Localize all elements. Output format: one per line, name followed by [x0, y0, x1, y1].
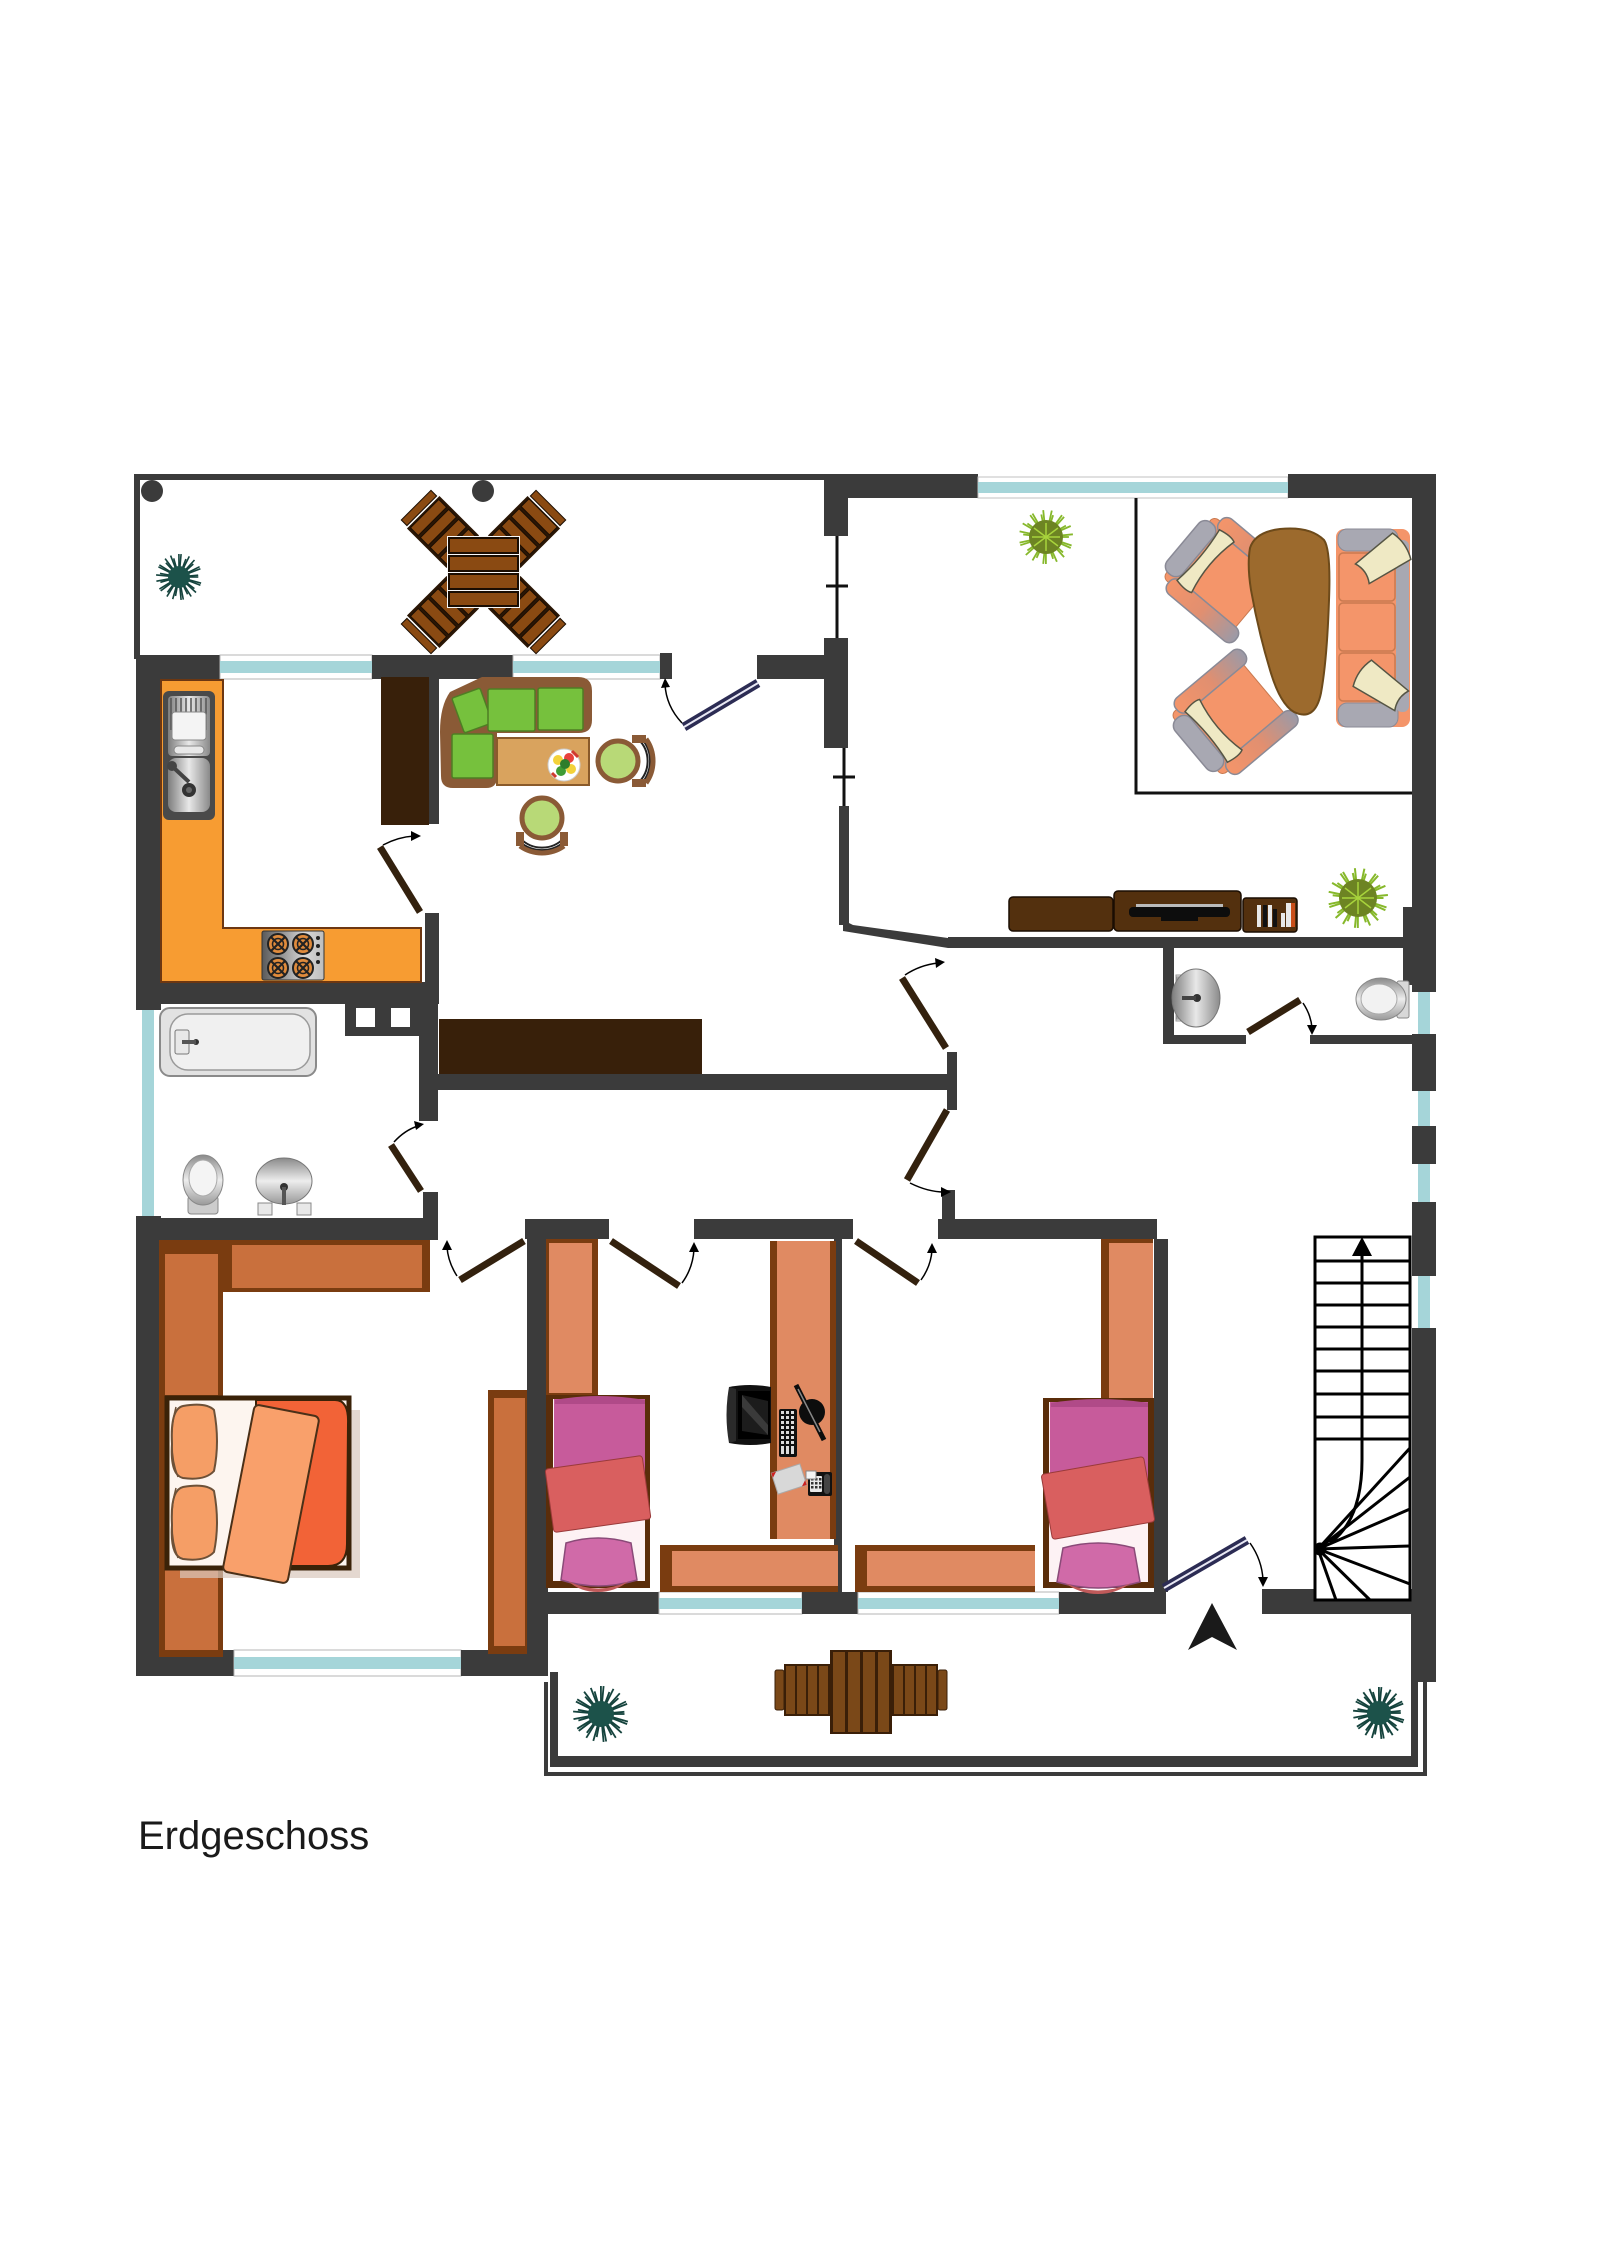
svg-text:Erdgeschoss: Erdgeschoss — [138, 1814, 369, 1858]
